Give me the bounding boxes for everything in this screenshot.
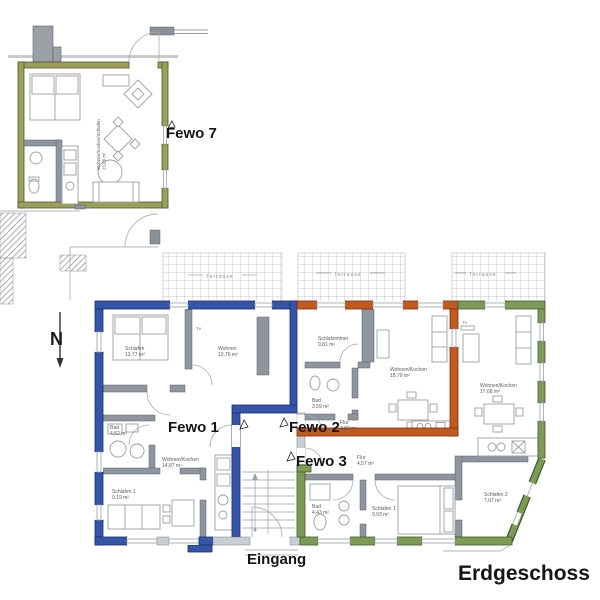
tv-label: TV bbox=[462, 320, 467, 325]
f2-bad-area: 3,59 m² bbox=[312, 404, 329, 410]
terrace-2: Terrasse bbox=[298, 253, 405, 302]
terrace-2-label: Terrasse bbox=[334, 272, 362, 278]
fewo3-label: Fewo 3 bbox=[296, 453, 347, 470]
fewo1-dining-table bbox=[163, 500, 194, 526]
fewo7-room-label: Wohnen/Kochen/Schlafen 23,08 m² bbox=[96, 119, 107, 170]
fewo1-label: Fewo 1 bbox=[168, 419, 219, 436]
leader-arrow-icon bbox=[287, 452, 295, 461]
fewo1-tv: TV bbox=[196, 326, 201, 331]
fewo3-sofa bbox=[516, 316, 531, 364]
f2-wohnen-kochen-area: 18,79 m² bbox=[390, 373, 410, 379]
fewo7-bed bbox=[30, 74, 80, 120]
staircase bbox=[242, 470, 295, 534]
f1-bad-area: 4,52 m² bbox=[110, 431, 127, 437]
fewo1-kitchen-counter bbox=[215, 455, 232, 530]
fewo7-label: Fewo 7 bbox=[166, 125, 217, 142]
fewo7-label-group: Fewo 7 bbox=[166, 121, 217, 142]
entrance-door bbox=[245, 507, 298, 555]
fewo7-roof-and-chimney bbox=[8, 26, 208, 62]
floor-plan-drawing: Wohnen/Kochen/Schlafen 23,08 m² Fewo 7 N… bbox=[0, 0, 600, 600]
leader-arrow-icon bbox=[280, 418, 288, 427]
fewo7-kitchen-counter bbox=[62, 146, 78, 204]
floor-plan-page: Wohnen/Kochen/Schlafen 23,08 m² Fewo 7 N… bbox=[0, 0, 600, 600]
f3-bad-area: 4,43 m² bbox=[312, 510, 329, 516]
north-label: N bbox=[50, 329, 63, 349]
fewo7-sofa bbox=[93, 182, 139, 202]
fewo7-dresser bbox=[103, 75, 129, 86]
fewo7-unit: Wohnen/Kochen/Schlafen 23,08 m² bbox=[8, 26, 208, 209]
f1-schlafen-area: 13,77 m² bbox=[125, 352, 145, 358]
fewo1-bottom-windows bbox=[127, 537, 300, 545]
existing-wall-hatching bbox=[0, 211, 86, 304]
f2-flur-area: 3,83 m² bbox=[340, 426, 357, 432]
fewo1-wardrobe bbox=[257, 317, 269, 375]
erdgeschoss-label: Erdgeschoss bbox=[458, 562, 590, 585]
fewo7-room-area: 23,08 m² bbox=[102, 152, 107, 170]
f1-schlafen1-area: 9,19 m² bbox=[112, 495, 129, 501]
fewo3-bed bbox=[398, 486, 455, 534]
fewo3-tv: TV bbox=[461, 320, 474, 330]
fewo1-sofa bbox=[108, 505, 160, 529]
eingang-label: Eingang bbox=[247, 551, 306, 568]
fewo7-bath-fixtures bbox=[29, 152, 42, 193]
fewo2-cabinet bbox=[377, 330, 389, 358]
f3-wohnen-kochen-area: 17,68 m² bbox=[480, 389, 500, 395]
f3-schlafen2-area: 7,07 m² bbox=[484, 498, 501, 504]
f2-schlafzimmer-area: 9,81 m² bbox=[318, 342, 335, 348]
tv-label: TV bbox=[196, 326, 201, 331]
fewo3-kitchen-counter bbox=[478, 438, 538, 456]
terrace-3-label: Terrasse bbox=[469, 272, 497, 278]
f1-wohnen-area: 13,76 m² bbox=[218, 352, 238, 358]
fewo7-room-name: Wohnen/Kochen/Schlafen bbox=[96, 119, 101, 170]
f3-schlafen1-area: 9,93 m² bbox=[372, 512, 389, 518]
terrace-3: Terrasse bbox=[452, 253, 545, 302]
fewo2-sofa bbox=[432, 316, 447, 362]
fewo7-dining-table bbox=[104, 117, 140, 161]
fewo2-bath-fixtures bbox=[310, 376, 339, 391]
f1-wohnen-kochen-area: 14,87 m² bbox=[162, 463, 182, 469]
fewo2-label: Fewo 2 bbox=[289, 419, 340, 436]
north-arrow-icon: N bbox=[50, 312, 64, 368]
terrace-1-label: Terrasse bbox=[206, 274, 234, 280]
f3-flur-area: 4,57 m² bbox=[357, 461, 374, 467]
fewo3-dining-table bbox=[475, 396, 523, 432]
terrace-1: Terrasse bbox=[163, 253, 282, 302]
fewo3-armchair bbox=[463, 334, 479, 362]
leader-arrow-icon bbox=[240, 420, 248, 429]
